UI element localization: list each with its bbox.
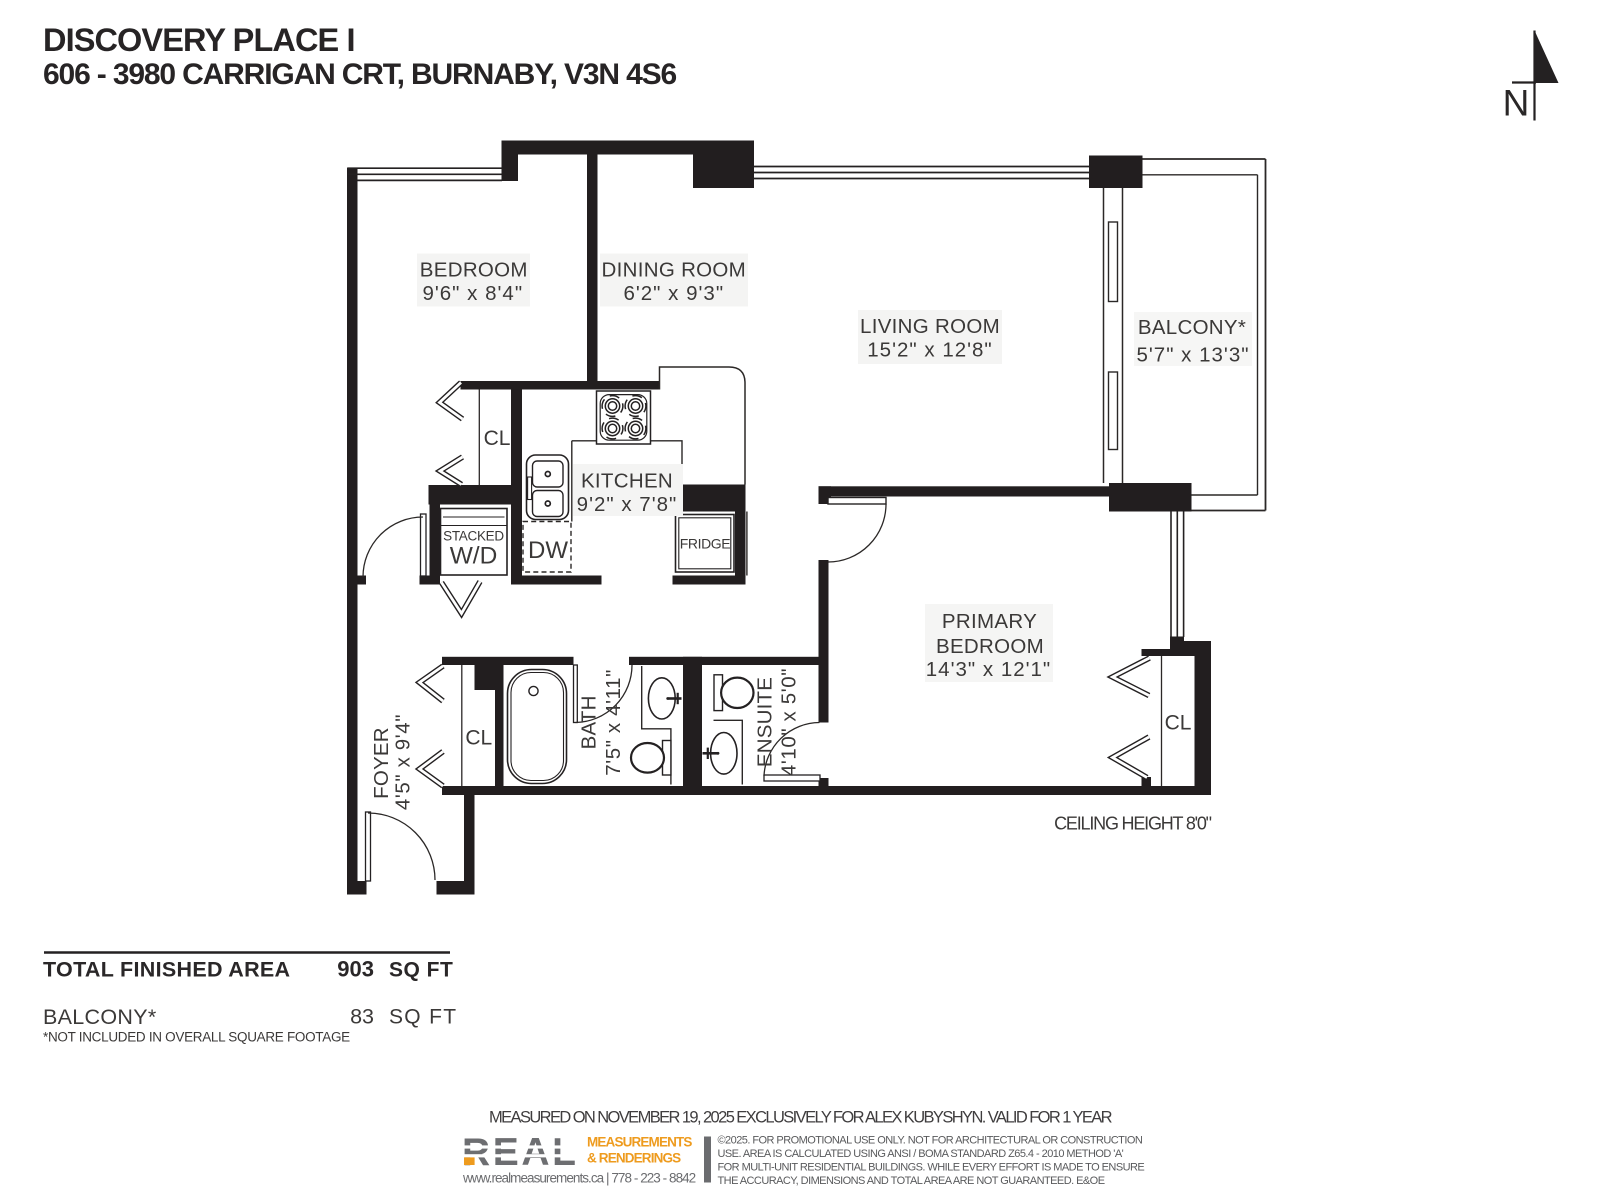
svg-text:W/D: W/D — [450, 543, 498, 570]
svg-text:ENSUITE: ENSUITE — [754, 677, 777, 767]
svg-text:DW: DW — [528, 537, 568, 564]
svg-text:REAL: REAL — [462, 1131, 579, 1174]
svg-text:606 - 3980 CARRIGAN CRT, BURNA: 606 - 3980 CARRIGAN CRT, BURNABY, V3N 4S… — [43, 58, 677, 91]
svg-text:*NOT INCLUDED IN OVERALL SQUAR: *NOT INCLUDED IN OVERALL SQUARE FOOTAGE — [43, 1030, 350, 1045]
svg-text:CL: CL — [484, 427, 511, 450]
svg-text:MEASURED ON NOVEMBER 19, 2025: MEASURED ON NOVEMBER 19, 2025 EXCLUSIVEL… — [489, 1109, 1113, 1127]
svg-text:CL: CL — [1165, 712, 1192, 735]
svg-text:www.realmeasurements.ca | 778: www.realmeasurements.ca | 778 - 223 - 88… — [462, 1171, 696, 1186]
svg-text:& RENDERINGS: & RENDERINGS — [587, 1151, 681, 1166]
svg-text:BEDROOM: BEDROOM — [936, 635, 1044, 658]
svg-text:BEDROOM: BEDROOM — [420, 259, 528, 282]
svg-text:STACKED: STACKED — [443, 529, 504, 544]
svg-text:BATH: BATH — [578, 695, 601, 749]
svg-text:PRIMARY: PRIMARY — [942, 610, 1037, 633]
svg-text:6'2" x 9'3": 6'2" x 9'3" — [623, 282, 724, 305]
svg-text:N: N — [1503, 83, 1530, 124]
svg-text:83: 83 — [350, 1005, 374, 1029]
svg-text:BALCONY*: BALCONY* — [1138, 316, 1246, 339]
svg-text:MEASUREMENTS: MEASUREMENTS — [587, 1135, 692, 1150]
svg-text:9'6" x 8'4": 9'6" x 8'4" — [422, 282, 523, 305]
svg-text:CEILING HEIGHT 8'0": CEILING HEIGHT 8'0" — [1054, 814, 1212, 834]
svg-text:USE. AREA IS CALCULATED USING: USE. AREA IS CALCULATED USING ANSI / BOM… — [718, 1148, 1124, 1160]
svg-text:THE ACCURACY, DIMENSIONS AND T: THE ACCURACY, DIMENSIONS AND TOTAL AREA … — [718, 1175, 1105, 1187]
svg-text:©2025. FOR PROMOTIONAL USE ONL: ©2025. FOR PROMOTIONAL USE ONLY. NOT FOR… — [718, 1135, 1143, 1147]
svg-text:DINING ROOM: DINING ROOM — [602, 259, 747, 282]
svg-text:FOR MULTI-UNIT RESIDENTIAL BUI: FOR MULTI-UNIT RESIDENTIAL BUILDINGS. WH… — [718, 1162, 1145, 1174]
svg-text:FRIDGE: FRIDGE — [680, 536, 731, 552]
svg-text:TOTAL FINISHED AREA: TOTAL FINISHED AREA — [43, 958, 290, 982]
svg-text:14'3" x 12'1": 14'3" x 12'1" — [926, 658, 1051, 681]
svg-text:903: 903 — [337, 957, 374, 982]
svg-text:SQ FT: SQ FT — [389, 959, 453, 982]
svg-text:BALCONY*: BALCONY* — [43, 1005, 157, 1029]
svg-text:FOYER: FOYER — [370, 727, 393, 799]
svg-text:7'5" x 4'11": 7'5" x 4'11" — [602, 669, 625, 776]
svg-text:15'2" x 12'8": 15'2" x 12'8" — [867, 339, 992, 362]
svg-text:SQ FT: SQ FT — [389, 1006, 457, 1029]
svg-text:LIVING ROOM: LIVING ROOM — [860, 315, 1000, 338]
svg-text:4'10" x 5'0": 4'10" x 5'0" — [777, 668, 800, 776]
svg-text:KITCHEN: KITCHEN — [581, 470, 673, 493]
svg-text:5'7" x 13'3": 5'7" x 13'3" — [1136, 344, 1249, 367]
svg-text:9'2" x 7'8": 9'2" x 7'8" — [577, 493, 678, 516]
svg-text:CL: CL — [465, 727, 492, 750]
svg-text:DISCOVERY PLACE I: DISCOVERY PLACE I — [43, 22, 355, 58]
svg-text:4'5" x 9'4": 4'5" x 9'4" — [392, 714, 415, 810]
